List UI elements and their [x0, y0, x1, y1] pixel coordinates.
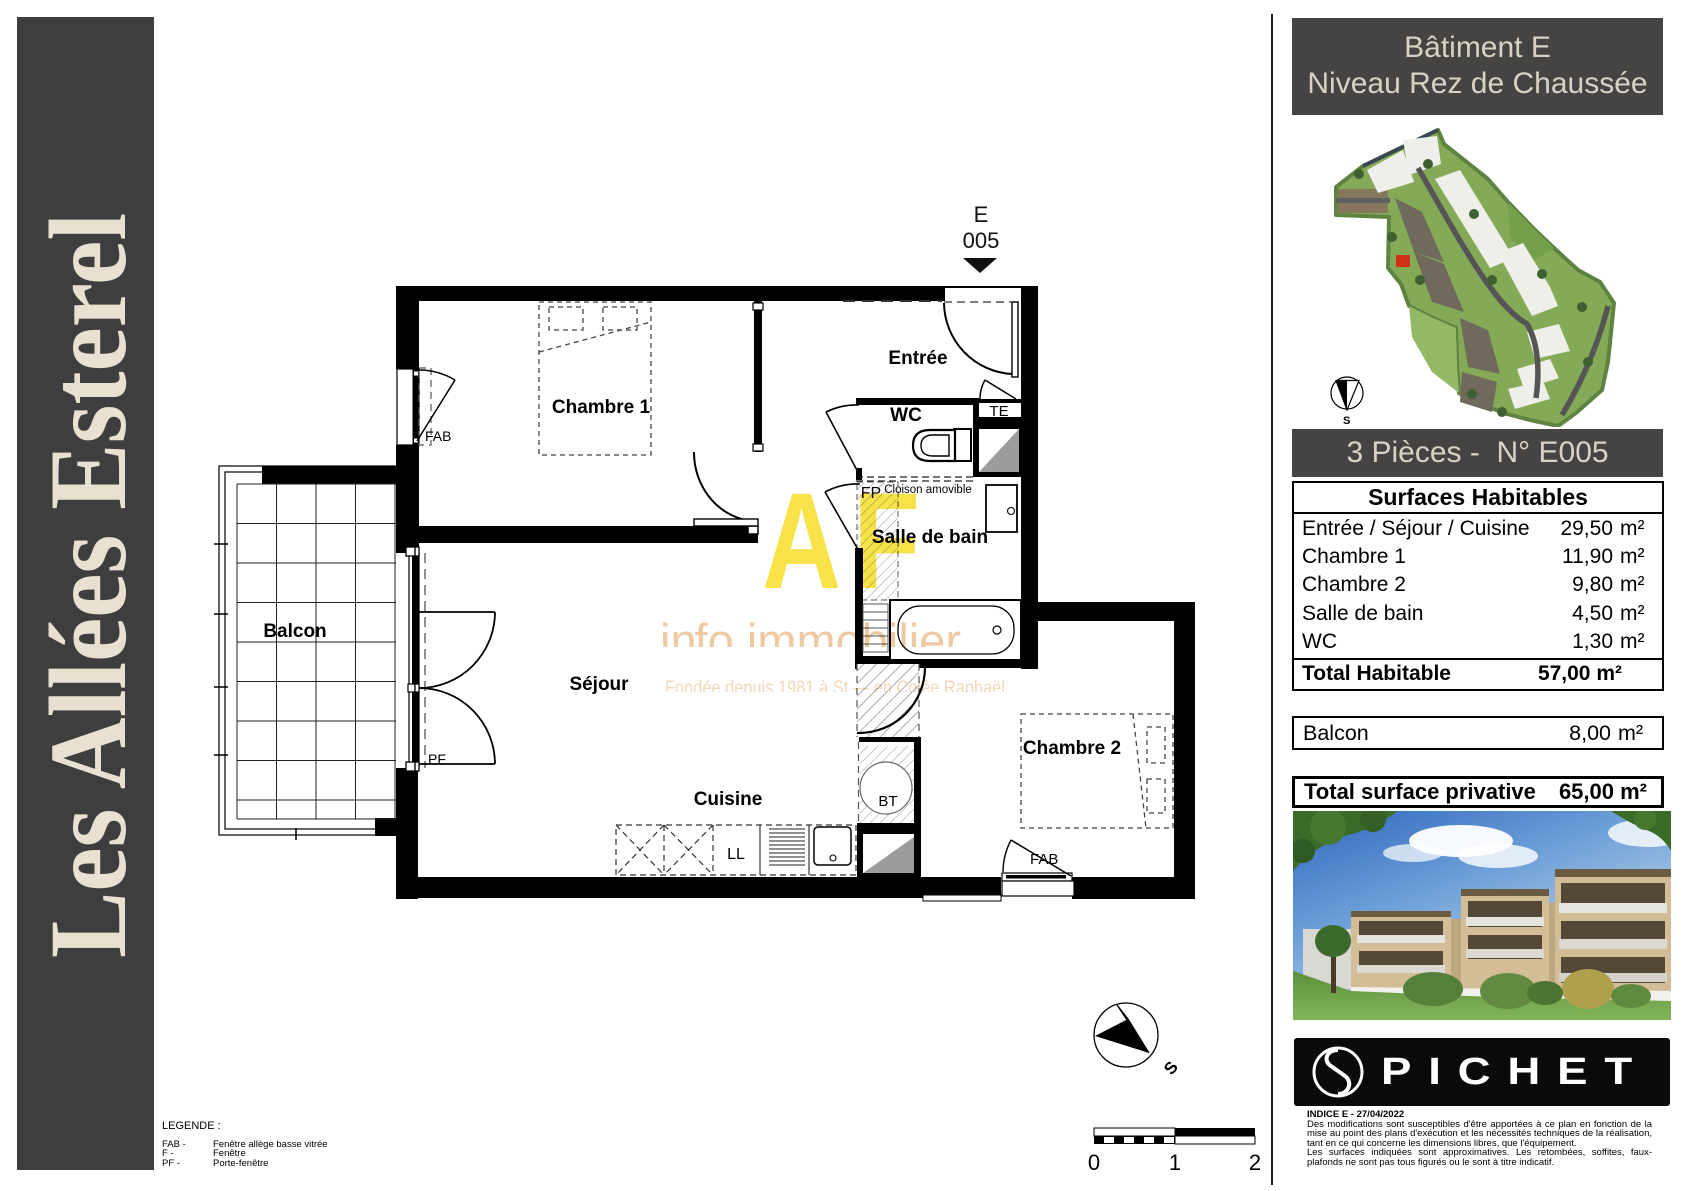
- svg-text:005: 005: [963, 228, 1000, 253]
- svg-text:S: S: [1343, 415, 1350, 427]
- svg-text:E: E: [974, 202, 989, 227]
- svg-text:2: 2: [1249, 1150, 1261, 1175]
- svg-text:TE: TE: [989, 403, 1008, 420]
- svg-text:S: S: [1160, 1058, 1182, 1079]
- svg-text:BT: BT: [878, 793, 897, 810]
- svg-text:Cloison amovible: Cloison amovible: [884, 484, 972, 496]
- svg-text:Chambre 2: Chambre 2: [1023, 738, 1121, 759]
- svg-text:Salle de bain: Salle de bain: [872, 527, 988, 548]
- svg-text:Entrée: Entrée: [888, 348, 947, 369]
- svg-text:PF: PF: [428, 751, 446, 767]
- svg-text:Séjour: Séjour: [569, 674, 629, 695]
- svg-text:FP: FP: [861, 485, 881, 502]
- svg-text:1: 1: [1169, 1150, 1181, 1175]
- svg-text:Cuisine: Cuisine: [694, 789, 763, 810]
- svg-text:FAB: FAB: [425, 428, 451, 444]
- svg-text:Fondée depuis 1981 à St — en C: Fondée depuis 1981 à St — en Colée Rapha…: [665, 678, 1005, 699]
- svg-text:Chambre 1: Chambre 1: [552, 397, 651, 418]
- svg-text:LL: LL: [727, 846, 745, 863]
- svg-text:FAB: FAB: [1030, 851, 1058, 868]
- svg-text:Balcon: Balcon: [263, 621, 326, 642]
- svg-text:WC: WC: [890, 405, 922, 426]
- svg-text:0: 0: [1088, 1150, 1100, 1175]
- svg-text:PICHET: PICHET: [1381, 1051, 1649, 1093]
